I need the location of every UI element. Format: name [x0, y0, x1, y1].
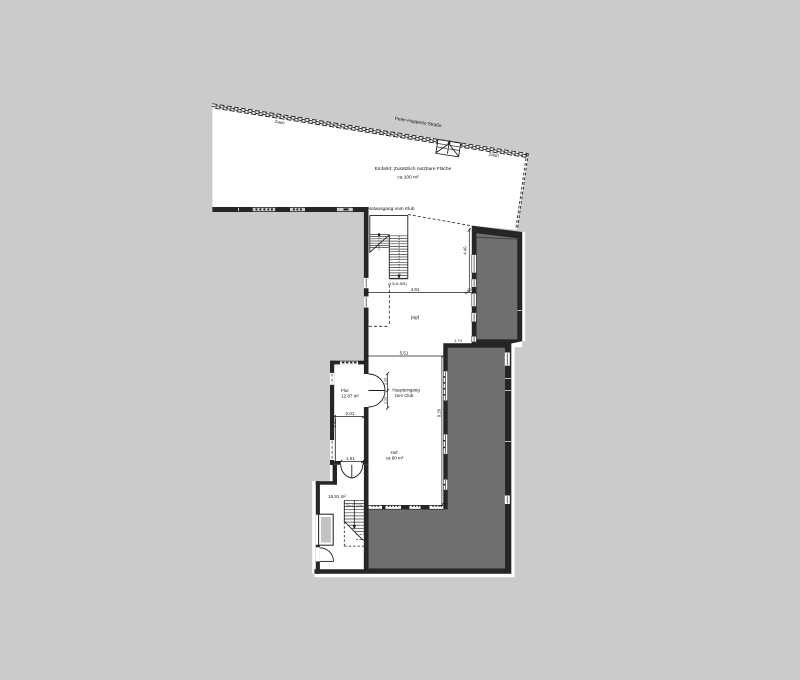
svg-text:Haupteingang: Haupteingang — [392, 388, 420, 393]
svg-text:Einfahrt: Zusätzlich nutzbare: Einfahrt: Zusätzlich nutzbare Fläche — [375, 166, 452, 172]
svg-text:4.40: 4.40 — [463, 246, 468, 255]
svg-text:Hof: Hof — [411, 316, 419, 322]
svg-text:(13=6.5/5): (13=6.5/5) — [388, 281, 407, 286]
svg-text:2.01: 2.01 — [346, 411, 355, 416]
svg-text:Flur: Flur — [341, 388, 349, 393]
svg-text:1.51: 1.51 — [346, 456, 355, 461]
svg-text:4.40: 4.40 — [332, 419, 337, 428]
svg-text:22: 22 — [467, 287, 472, 292]
svg-text:Notausgang vom Klub: Notausgang vom Klub — [367, 206, 415, 212]
svg-text:16.91 m²: 16.91 m² — [328, 494, 346, 499]
svg-text:1.74: 1.74 — [454, 338, 463, 343]
svg-text:1.13: 1.13 — [384, 378, 388, 385]
svg-text:5.51: 5.51 — [400, 351, 409, 356]
svg-text:Hof: Hof — [390, 450, 398, 455]
svg-text:9.26: 9.26 — [436, 408, 441, 417]
svg-text:1.13: 1.13 — [384, 397, 388, 404]
svg-text:zum Club: zum Club — [395, 393, 414, 398]
svg-text:4.91: 4.91 — [411, 287, 420, 292]
svg-text:ca 90 m²: ca 90 m² — [386, 456, 404, 461]
svg-text:20x17.2/25: 20x17.2/25 — [346, 504, 363, 508]
svg-text:12.87 m²: 12.87 m² — [341, 394, 359, 399]
svg-text:ca 100 m²: ca 100 m² — [397, 175, 419, 181]
